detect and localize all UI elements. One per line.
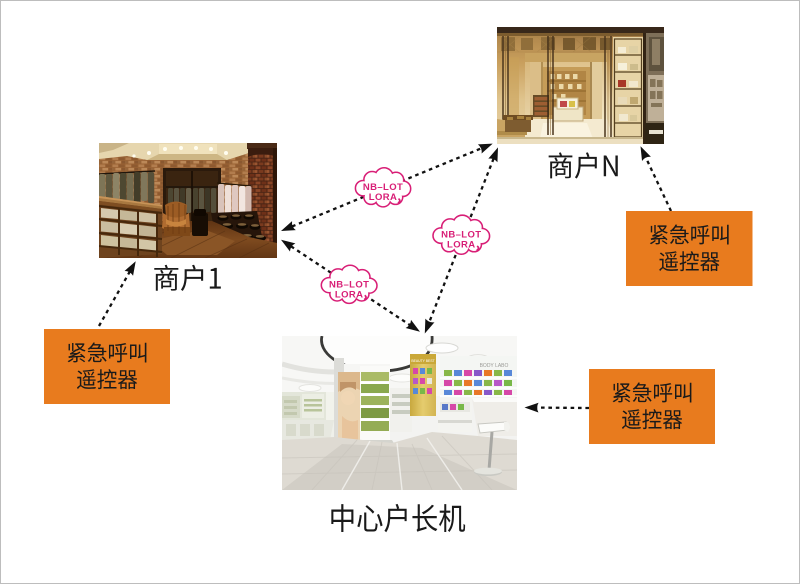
- svg-text:LORA: LORA: [369, 192, 398, 203]
- svg-text:LORA: LORA: [447, 239, 476, 250]
- svg-text:LORA: LORA: [335, 289, 364, 300]
- svg-text:BODY LABO: BODY LABO: [480, 363, 509, 369]
- svg-text:BEAUTY BEST: BEAUTY BEST: [411, 359, 434, 363]
